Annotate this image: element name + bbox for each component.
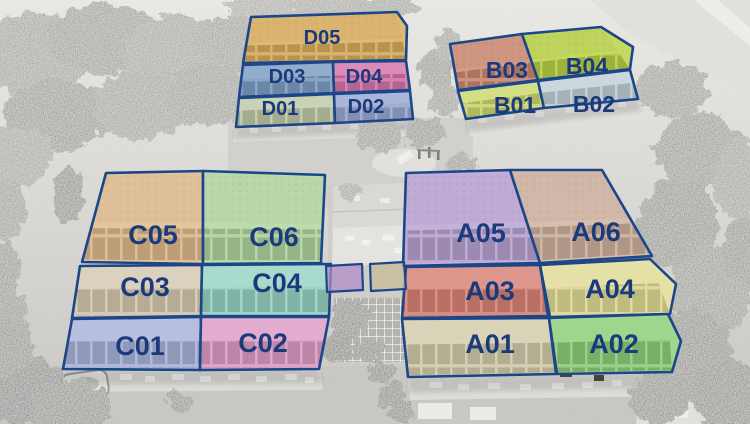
unit-hotspot-a04[interactable] xyxy=(540,259,676,317)
terrace-overlay-1[interactable] xyxy=(326,264,363,292)
unit-overlay-d03[interactable]: D03 xyxy=(239,62,334,97)
unit-hotspot-c01[interactable] xyxy=(63,317,201,370)
unit-hotspot-d02[interactable] xyxy=(334,91,413,123)
unit-hotspot-c03[interactable] xyxy=(72,265,202,318)
unit-hotspot-d05[interactable] xyxy=(243,12,407,63)
unit-hotspot-a01[interactable] xyxy=(402,318,556,377)
unit-overlay-c01[interactable]: C01 xyxy=(63,317,201,370)
unit-overlay-d01[interactable]: D01 xyxy=(236,94,335,127)
unit-overlay-c03[interactable]: C03 xyxy=(72,265,202,318)
unit-hotspot-d03[interactable] xyxy=(239,62,334,97)
unit-overlay-d02[interactable]: D02 xyxy=(334,91,413,123)
unit-overlay-d04[interactable]: D04 xyxy=(333,61,410,93)
terrace-overlay-2[interactable] xyxy=(370,262,406,291)
unit-hotspot-d04[interactable] xyxy=(333,61,410,93)
unit-hotspot-c02[interactable] xyxy=(200,317,329,370)
unit-overlay-d05[interactable]: D05 xyxy=(243,12,407,63)
unit-hotspot-a02[interactable] xyxy=(549,314,681,374)
aerial-site-plan: D05 D03 D04 D01 D02 B03 B04 B01 xyxy=(0,0,750,424)
unit-overlay-c02[interactable]: C02 xyxy=(200,317,329,370)
unit-hotspot-c04[interactable] xyxy=(201,264,331,316)
unit-overlay-a04[interactable]: A04 xyxy=(540,259,676,317)
unit-overlay-c04[interactable]: C04 xyxy=(201,264,331,316)
unit-hotspot-c06[interactable] xyxy=(203,171,325,264)
unit-hotspot-a03[interactable] xyxy=(402,265,548,318)
unit-overlay-a02[interactable]: A02 xyxy=(549,314,681,374)
unit-overlay-a03[interactable]: A03 xyxy=(402,265,548,318)
unit-overlay-c06[interactable]: C06 xyxy=(203,171,325,264)
unit-overlay-a01[interactable]: A01 xyxy=(402,318,556,377)
unit-hotspot-d01[interactable] xyxy=(236,94,335,127)
